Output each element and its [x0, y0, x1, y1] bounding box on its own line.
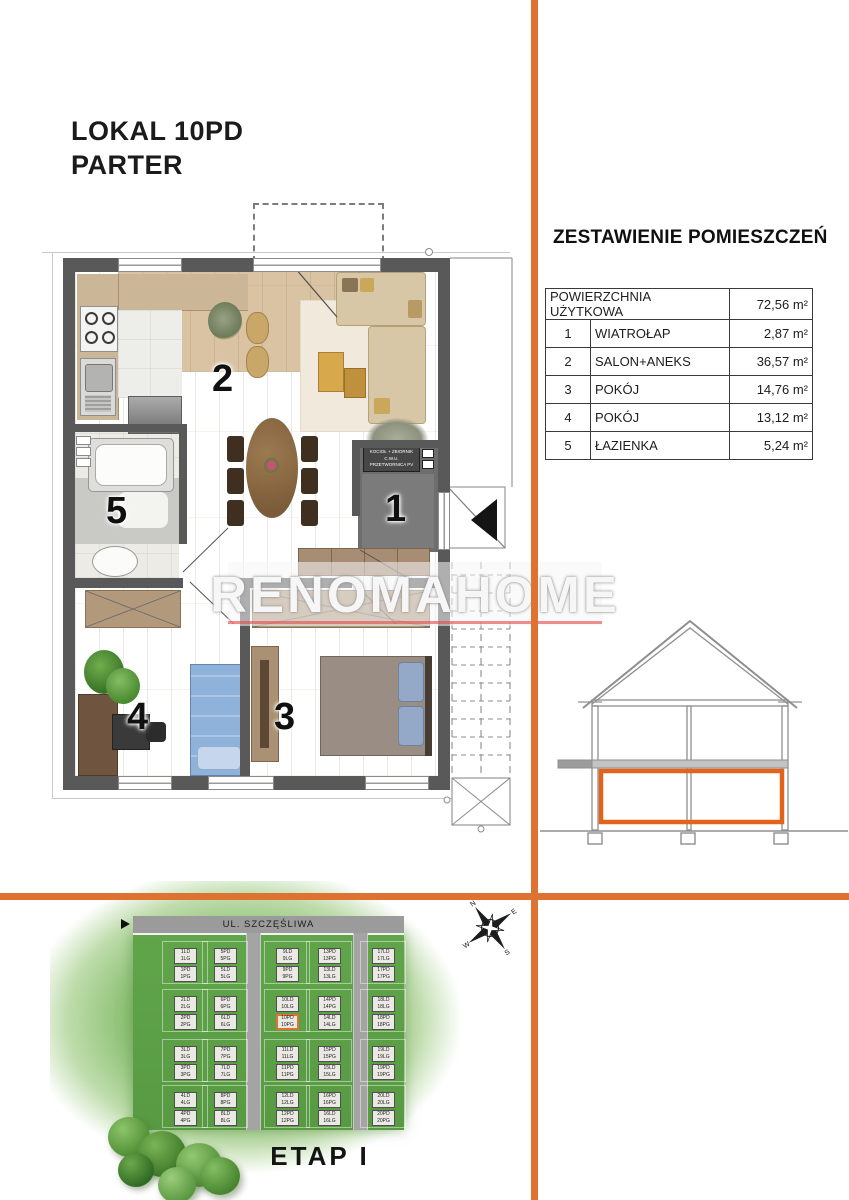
- site-block-19LD: 19LD19LG: [372, 1046, 395, 1062]
- site-block-20LD: 20LD20LG: [372, 1092, 395, 1108]
- wall-bathroom-right: [179, 424, 187, 544]
- site-block-3LD: 3LD3LG: [174, 1046, 197, 1062]
- site-block-14PD: 14PD14PG: [318, 996, 341, 1012]
- entrance-door-opening: [438, 492, 450, 550]
- site-plan: UL. SZCZĘŚLIWA 1LD1LG1PD1PG2LD2LG2PD2PG3…: [80, 895, 445, 1200]
- wall-bathroom-top: [75, 424, 187, 432]
- site-block-16PD: 16PD16PG: [318, 1092, 341, 1108]
- site-block-7PD: 7PD7PG: [214, 1046, 237, 1062]
- window: [118, 258, 182, 272]
- site-block-6LD: 6LD6LG: [214, 1014, 237, 1030]
- site-block-1LD: 1LD1LG: [174, 948, 197, 964]
- site-block-4PD: 4PD4PG: [174, 1110, 197, 1126]
- wall-entry-top: [352, 440, 438, 448]
- divider-vertical: [531, 0, 538, 1200]
- site-block-8LD: 8LD8LG: [214, 1110, 237, 1126]
- summary-title: ZESTAWIENIE POMIESZCZEŃ: [553, 227, 828, 249]
- compass-n: N: [469, 900, 477, 909]
- site-block-5LD: 5LD5LG: [214, 966, 237, 982]
- site-block-11PD: 11PD11PG: [276, 1064, 299, 1080]
- stage-label: ETAP I: [230, 1141, 410, 1172]
- watermark-underline: [228, 621, 602, 624]
- tree: [158, 1167, 196, 1200]
- unit-title-line2: PARTER: [71, 149, 244, 183]
- row-name: POKÓJ: [591, 376, 730, 404]
- site-block-4LD: 4LD4LG: [174, 1092, 197, 1108]
- row-area: 36,57 m²: [730, 348, 813, 376]
- site-block-12LD: 12LD12LG: [276, 1092, 299, 1108]
- row-no: 1: [546, 320, 591, 348]
- site-block-3PD: 3PD3PG: [174, 1064, 197, 1080]
- divider-horizontal: [0, 893, 849, 900]
- wall-entry-left: [352, 440, 360, 516]
- room-label-4: 4: [127, 698, 148, 736]
- window: [208, 776, 274, 790]
- flyer-page: LOKAL 10PD PARTER: [0, 0, 849, 1200]
- compass-rose: N E S W: [458, 896, 522, 960]
- table-row: 1 WIATROŁAP 2,87 m²: [546, 320, 813, 348]
- site-block-6PD: 6PD6PG: [214, 996, 237, 1012]
- row-name: SALON+ANEKS: [591, 348, 730, 376]
- compass-e: E: [510, 908, 518, 917]
- row-name: POKÓJ: [591, 404, 730, 432]
- compass-s: S: [504, 949, 512, 958]
- site-block-9PD: 9PD9PG: [276, 966, 299, 982]
- site-block-2PD: 2PD2PG: [174, 1014, 197, 1030]
- room-label-2: 2: [212, 360, 233, 398]
- site-block-10LD: 10LD10LG: [276, 996, 299, 1012]
- tree: [118, 1153, 154, 1187]
- summary-table: POWIERZCHNIA UŻYTKOWA 72,56 m² 1 WIATROŁ…: [545, 288, 813, 460]
- row-area: 13,12 m²: [730, 404, 813, 432]
- table-row: 2 SALON+ANEKS 36,57 m²: [546, 348, 813, 376]
- row-name: WIATROŁAP: [591, 320, 730, 348]
- window: [365, 776, 429, 790]
- table-row: 4 POKÓJ 13,12 m²: [546, 404, 813, 432]
- window-terrace: [253, 258, 381, 272]
- site-block-15LD: 15LD15LG: [318, 1064, 341, 1080]
- unit-title-line1: LOKAL 10PD: [71, 115, 244, 149]
- row-no: 5: [546, 432, 591, 460]
- watermark-band: RENOMAHOME: [228, 562, 602, 626]
- window: [118, 776, 172, 790]
- table-row: 3 POKÓJ 14,76 m²: [546, 376, 813, 404]
- total-label: POWIERZCHNIA UŻYTKOWA: [546, 289, 730, 320]
- row-no: 4: [546, 404, 591, 432]
- row-no: 2: [546, 348, 591, 376]
- row-area: 14,76 m²: [730, 376, 813, 404]
- site-block-10PD: 10PD10PG: [276, 1014, 299, 1030]
- row-area: 2,87 m²: [730, 320, 813, 348]
- site-block-13PD: 13PD13PG: [318, 948, 341, 964]
- site-block-14LD: 14LD14LG: [318, 1014, 341, 1030]
- site-block-11LD: 11LD11LG: [276, 1046, 299, 1062]
- unit-title: LOKAL 10PD PARTER: [71, 115, 244, 183]
- room-label-3: 3: [274, 698, 295, 736]
- building-cross-section: [540, 608, 849, 856]
- site-block-9LD: 9LD9LG: [276, 948, 299, 964]
- site-block-7LD: 7LD7LG: [214, 1064, 237, 1080]
- site-block-19PD: 19PD19PG: [372, 1064, 395, 1080]
- row-no: 3: [546, 376, 591, 404]
- site-block-18LD: 18LD18LG: [372, 996, 395, 1012]
- site-block-18PD: 18PD18PG: [372, 1014, 395, 1030]
- table-row-total: POWIERZCHNIA UŻYTKOWA 72,56 m²: [546, 289, 813, 320]
- site-block-13LD: 13LD13LG: [318, 966, 341, 982]
- row-name: ŁAZIENKA: [591, 432, 730, 460]
- tree: [200, 1157, 240, 1195]
- wall-hall-1: [75, 578, 183, 588]
- site-block-12PD: 12PD12PG: [276, 1110, 299, 1126]
- site-block-17LD: 17LD17LG: [372, 948, 395, 964]
- wall-left: [63, 258, 75, 790]
- row-area: 5,24 m²: [730, 432, 813, 460]
- site-block-5PD: 5PD5PG: [214, 948, 237, 964]
- watermark-text: RENOMAHOME: [210, 565, 620, 624]
- site-block-16LD: 16LD16LG: [318, 1110, 341, 1126]
- site-block-20PD: 20PD20PG: [372, 1110, 395, 1126]
- site-block-2LD: 2LD2LG: [174, 996, 197, 1012]
- room-label-5: 5: [106, 492, 127, 530]
- room-label-1: 1: [385, 490, 406, 528]
- site-block-15PD: 15PD15PG: [318, 1046, 341, 1062]
- total-area: 72,56 m²: [730, 289, 813, 320]
- site-block-1PD: 1PD1PG: [174, 966, 197, 982]
- site-block-17PD: 17PD17PG: [372, 966, 395, 982]
- table-row: 5 ŁAZIENKA 5,24 m²: [546, 432, 813, 460]
- site-block-8PD: 8PD8PG: [214, 1092, 237, 1108]
